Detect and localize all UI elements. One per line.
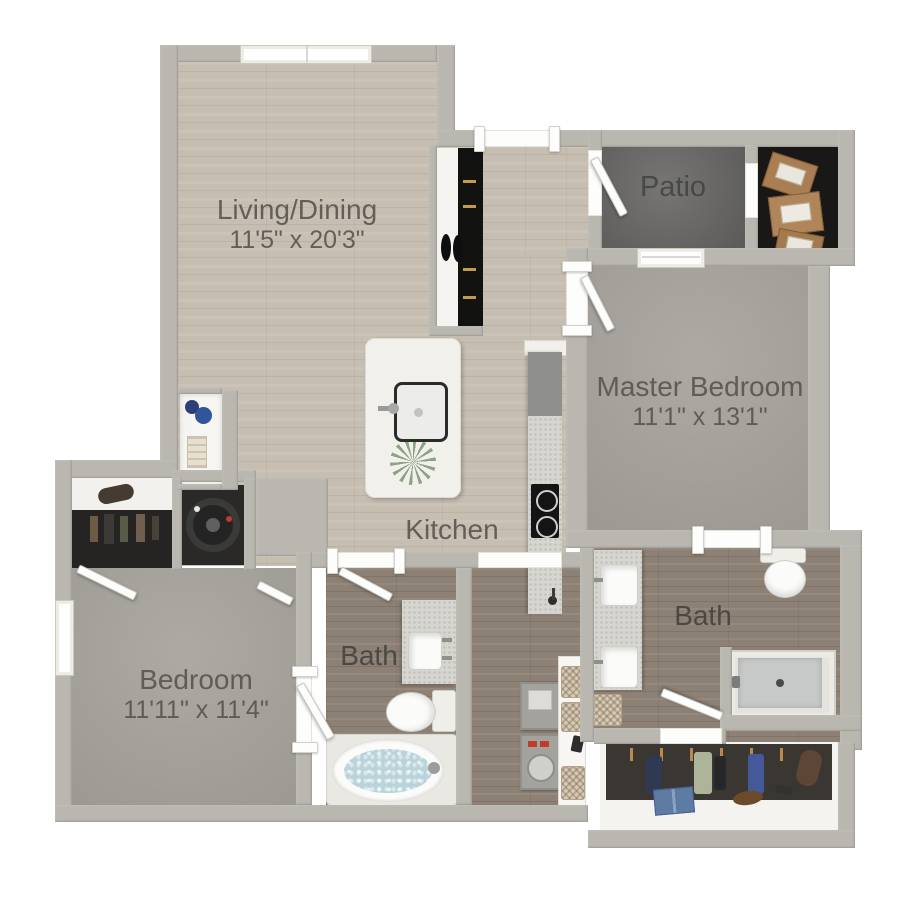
wall bbox=[588, 830, 855, 848]
wall bbox=[808, 266, 830, 548]
burner bbox=[536, 490, 558, 512]
wall bbox=[178, 484, 222, 490]
cardboard-box bbox=[768, 191, 824, 237]
cabinet-tray bbox=[528, 690, 552, 710]
decor-dial bbox=[527, 754, 555, 782]
master-bedroom-floor bbox=[588, 266, 808, 530]
coat-closet-back bbox=[458, 148, 483, 328]
master-bath-closet-opening bbox=[660, 728, 722, 744]
folded-jeans bbox=[653, 786, 695, 815]
closet-hook bbox=[463, 180, 476, 183]
shoe-right bbox=[453, 235, 463, 262]
sink-faucet bbox=[594, 660, 603, 664]
sink-drain bbox=[414, 408, 423, 417]
wall bbox=[838, 130, 855, 266]
wall bbox=[55, 460, 178, 478]
sink-faucet-handle bbox=[442, 656, 452, 660]
door-jamb bbox=[549, 126, 560, 152]
red-accent bbox=[528, 741, 537, 747]
wall bbox=[55, 805, 588, 822]
patio-sliding-door bbox=[637, 248, 705, 268]
hanging-garment bbox=[90, 516, 98, 542]
sink-faucet bbox=[442, 638, 452, 642]
wall bbox=[160, 45, 178, 478]
tub-water bbox=[344, 749, 432, 793]
entry-hall-floor-sliver bbox=[566, 145, 588, 248]
wall bbox=[720, 715, 862, 731]
shower-drain bbox=[776, 679, 784, 687]
wall bbox=[172, 478, 182, 570]
counter-sink-faucet-stem bbox=[552, 588, 555, 600]
door-jamb bbox=[562, 261, 592, 272]
door-jamb bbox=[292, 666, 318, 677]
door-jamb bbox=[292, 742, 318, 753]
wall bbox=[244, 478, 256, 570]
hanging-garment bbox=[748, 754, 764, 794]
hanging-garment bbox=[714, 756, 726, 790]
door-jamb bbox=[474, 126, 485, 152]
patio-floor bbox=[600, 145, 745, 248]
wall bbox=[429, 145, 437, 331]
vanity-sink bbox=[408, 632, 442, 670]
tub-faucet bbox=[428, 762, 440, 774]
linen-basket bbox=[561, 766, 585, 800]
closet-hook bbox=[780, 748, 783, 761]
door-jamb bbox=[562, 325, 592, 336]
bedroom-window bbox=[55, 600, 74, 676]
door-jamb bbox=[327, 548, 338, 574]
living-window bbox=[240, 45, 372, 64]
burner bbox=[536, 516, 558, 538]
shower-valve bbox=[732, 676, 740, 688]
folded-towels bbox=[187, 436, 207, 468]
wall bbox=[429, 326, 483, 336]
bedroom-floor bbox=[72, 568, 296, 805]
wall bbox=[456, 568, 472, 805]
wall bbox=[178, 388, 222, 394]
storage-door-opening bbox=[745, 163, 758, 218]
sink-faucet bbox=[594, 578, 603, 582]
closet-hook bbox=[690, 748, 693, 761]
utility-wall-block bbox=[256, 478, 328, 556]
bath-door-opening bbox=[334, 552, 396, 568]
potted-plant bbox=[390, 439, 436, 485]
washer-knob bbox=[194, 506, 200, 512]
wall bbox=[566, 248, 855, 266]
closet-hook bbox=[463, 268, 476, 271]
hall-opening bbox=[478, 552, 562, 568]
master-bath-opening bbox=[700, 530, 762, 548]
door-jamb bbox=[760, 526, 772, 554]
toilet-bowl bbox=[386, 692, 436, 732]
refrigerator bbox=[528, 352, 562, 416]
blue-vase bbox=[195, 407, 212, 424]
closet-hook bbox=[463, 205, 476, 208]
hanging-garment bbox=[694, 752, 712, 794]
red-accent bbox=[540, 741, 549, 747]
hamper bbox=[592, 694, 622, 726]
hanging-garment bbox=[152, 516, 159, 540]
wall bbox=[222, 390, 238, 490]
master-sink bbox=[600, 646, 638, 688]
hanging-garment bbox=[104, 514, 114, 544]
wall bbox=[580, 548, 594, 742]
closet-hook bbox=[463, 296, 476, 299]
entry-opening bbox=[483, 130, 550, 147]
washer-light bbox=[226, 516, 232, 522]
shoe-left bbox=[441, 234, 451, 261]
door-jamb bbox=[692, 526, 704, 554]
hanging-garment bbox=[120, 516, 128, 542]
closet-hook bbox=[630, 748, 633, 761]
hanging-garment bbox=[136, 514, 145, 542]
master-sink bbox=[600, 564, 638, 606]
door-jamb bbox=[394, 548, 405, 574]
island-faucet-base bbox=[388, 403, 399, 414]
master-toilet-bowl bbox=[764, 560, 806, 598]
floor-plan: Living/Dining 11'5" x 20'3" Patio Master… bbox=[0, 0, 900, 900]
